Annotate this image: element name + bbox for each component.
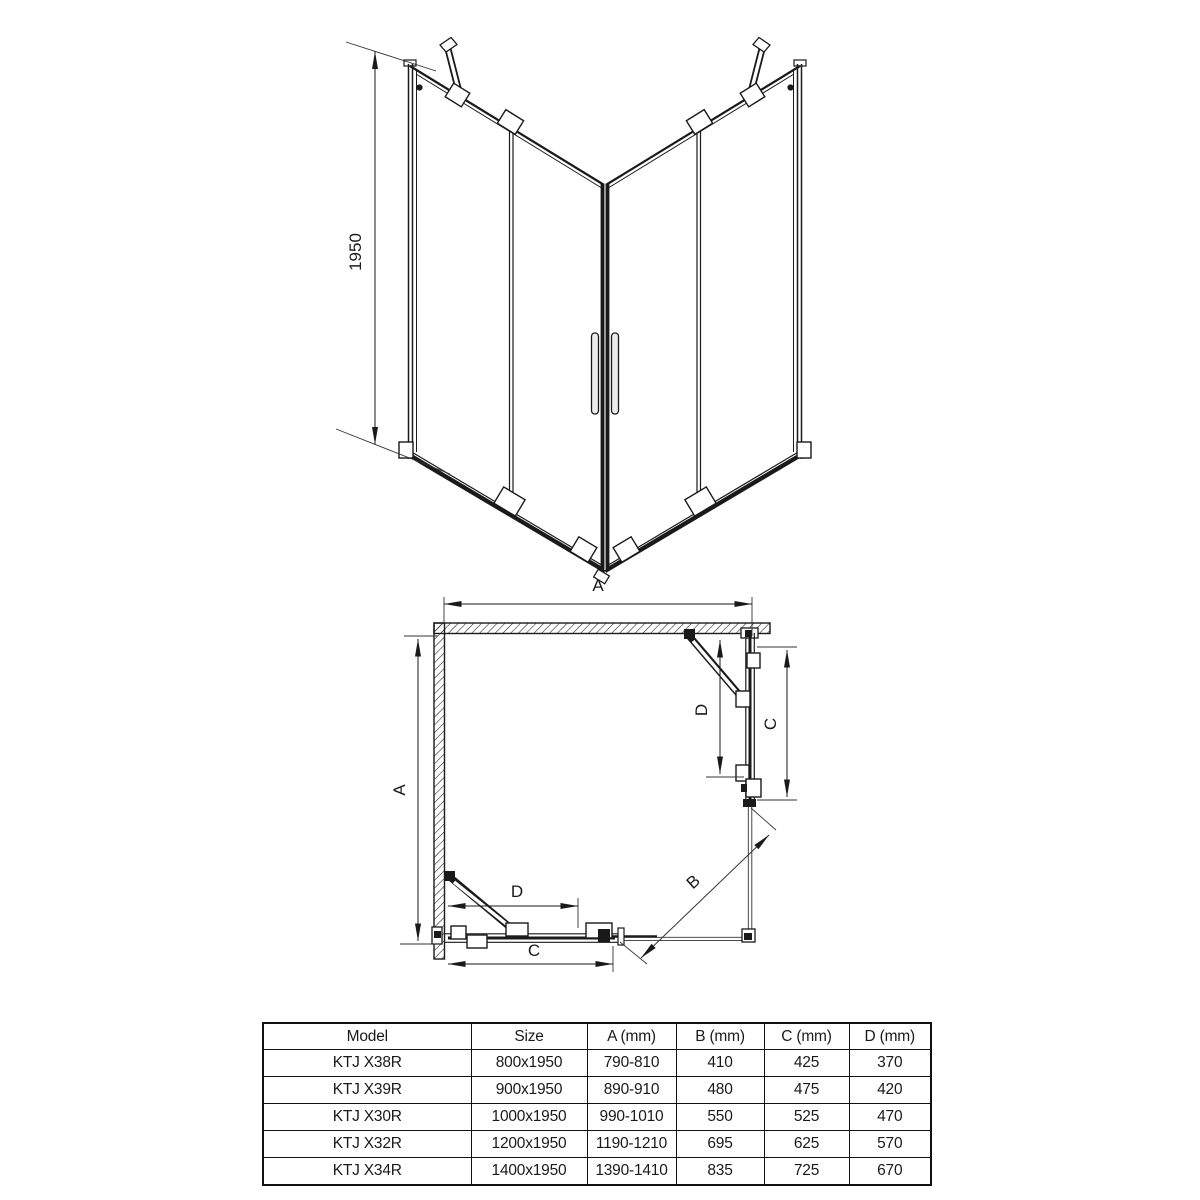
cell-a: 790-810 bbox=[587, 1050, 676, 1077]
cell-model: KTJ X34R bbox=[263, 1157, 471, 1185]
col-header-model: Model bbox=[263, 1023, 471, 1050]
cell-c: 725 bbox=[764, 1157, 849, 1185]
col-header-b: B (mm) bbox=[676, 1023, 764, 1050]
plan-corner-block bbox=[742, 929, 755, 942]
front-height-label: 1950 bbox=[346, 233, 365, 271]
plan-side-d-label: D bbox=[692, 704, 711, 716]
col-header-c: C (mm) bbox=[764, 1023, 849, 1050]
cell-c: 425 bbox=[764, 1050, 849, 1077]
col-header-a: A (mm) bbox=[587, 1023, 676, 1050]
table-row: KTJ X38R 800x1950 790-810 410 425 370 bbox=[263, 1050, 931, 1077]
plan-top-wall bbox=[434, 623, 770, 634]
table-row: KTJ X30R 1000x1950 990-1010 550 525 470 bbox=[263, 1103, 931, 1130]
plan-view: A A D C bbox=[390, 576, 797, 972]
cell-b: 480 bbox=[676, 1076, 764, 1103]
cell-b: 835 bbox=[676, 1157, 764, 1185]
col-header-size: Size bbox=[471, 1023, 587, 1050]
plan-depth-a-label: A bbox=[390, 784, 409, 796]
plan-side-d-dimension: D bbox=[692, 640, 744, 777]
plan-left-wall bbox=[434, 623, 445, 959]
cell-model: KTJ X39R bbox=[263, 1076, 471, 1103]
cell-model: KTJ X30R bbox=[263, 1103, 471, 1130]
cell-model: KTJ X32R bbox=[263, 1130, 471, 1157]
front-height-dimension: 1950 bbox=[336, 42, 450, 474]
cell-size: 900x1950 bbox=[471, 1076, 587, 1103]
plan-door-c-label: C bbox=[528, 941, 540, 960]
spec-table: Model Size A (mm) B (mm) C (mm) D (mm) K… bbox=[262, 1022, 932, 1186]
plan-diagonal-b-label: B bbox=[683, 871, 704, 893]
cell-a: 990-1010 bbox=[587, 1103, 676, 1130]
cell-b: 695 bbox=[676, 1130, 764, 1157]
table-row: KTJ X34R 1400x1950 1390-1410 835 725 670 bbox=[263, 1157, 931, 1185]
cell-c: 525 bbox=[764, 1103, 849, 1130]
cell-d: 470 bbox=[849, 1103, 931, 1130]
cell-c: 475 bbox=[764, 1076, 849, 1103]
cell-d: 570 bbox=[849, 1130, 931, 1157]
plan-door-d-label: D bbox=[511, 882, 523, 901]
table-header-row: Model Size A (mm) B (mm) C (mm) D (mm) bbox=[263, 1023, 931, 1050]
table-row: KTJ X39R 900x1950 890-910 480 475 420 bbox=[263, 1076, 931, 1103]
plan-side-c-dimension: C bbox=[757, 647, 797, 800]
table-row: KTJ X32R 1200x1950 1190-1210 695 625 570 bbox=[263, 1130, 931, 1157]
cell-model: KTJ X38R bbox=[263, 1050, 471, 1077]
cell-size: 800x1950 bbox=[471, 1050, 587, 1077]
cell-size: 1400x1950 bbox=[471, 1157, 587, 1185]
cell-size: 1000x1950 bbox=[471, 1103, 587, 1130]
plan-side-c-label: C bbox=[761, 718, 780, 730]
cell-a: 890-910 bbox=[587, 1076, 676, 1103]
cell-size: 1200x1950 bbox=[471, 1130, 587, 1157]
plan-depth-dimension: A bbox=[390, 636, 440, 944]
col-header-d: D (mm) bbox=[849, 1023, 931, 1050]
cell-a: 1390-1410 bbox=[587, 1157, 676, 1185]
cell-b: 550 bbox=[676, 1103, 764, 1130]
plan-width-a-label: A bbox=[592, 576, 604, 595]
cell-d: 670 bbox=[849, 1157, 931, 1185]
cell-c: 625 bbox=[764, 1130, 849, 1157]
cell-b: 410 bbox=[676, 1050, 764, 1077]
cell-d: 370 bbox=[849, 1050, 931, 1077]
cell-a: 1190-1210 bbox=[587, 1130, 676, 1157]
technical-drawing: 1950 bbox=[0, 0, 1200, 1010]
front-view: 1950 bbox=[336, 38, 811, 584]
cell-d: 420 bbox=[849, 1076, 931, 1103]
spec-sheet-page: 1950 bbox=[0, 0, 1200, 1200]
